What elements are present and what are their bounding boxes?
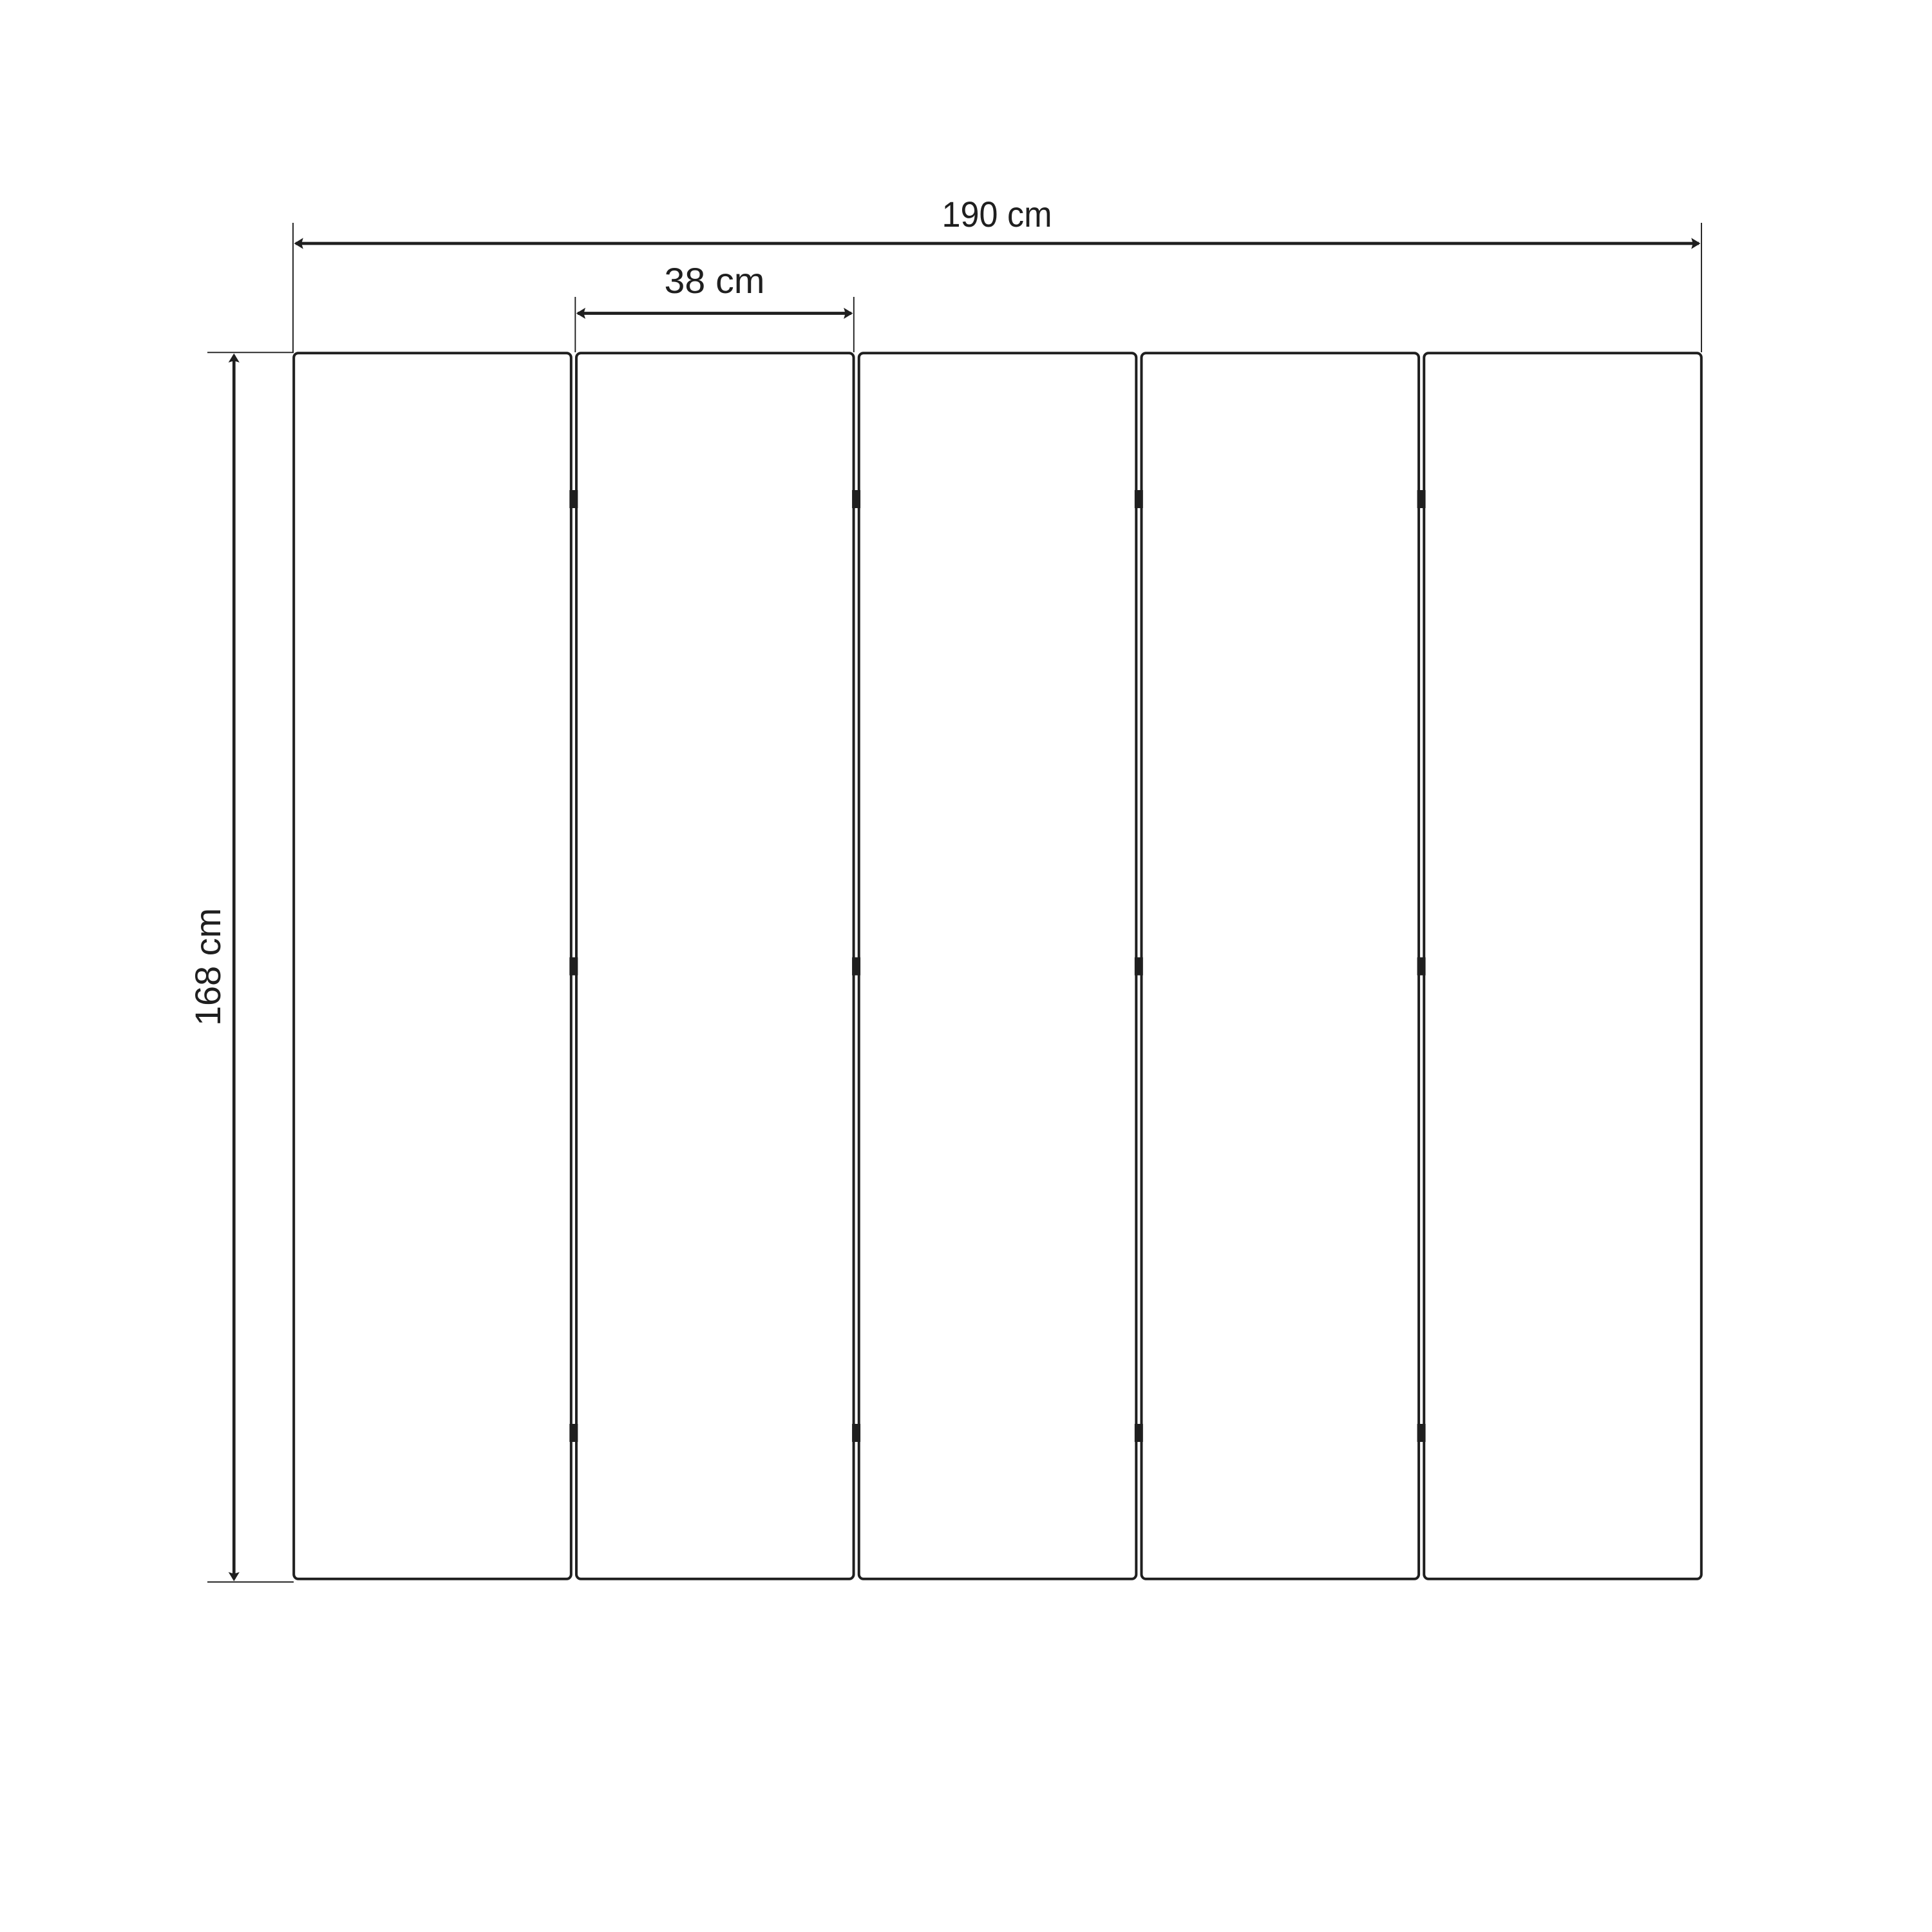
svg-text:168 cm: 168 cm (187, 908, 228, 1026)
svg-text:190 cm: 190 cm (942, 194, 1052, 234)
svg-text:38 cm: 38 cm (665, 260, 765, 301)
